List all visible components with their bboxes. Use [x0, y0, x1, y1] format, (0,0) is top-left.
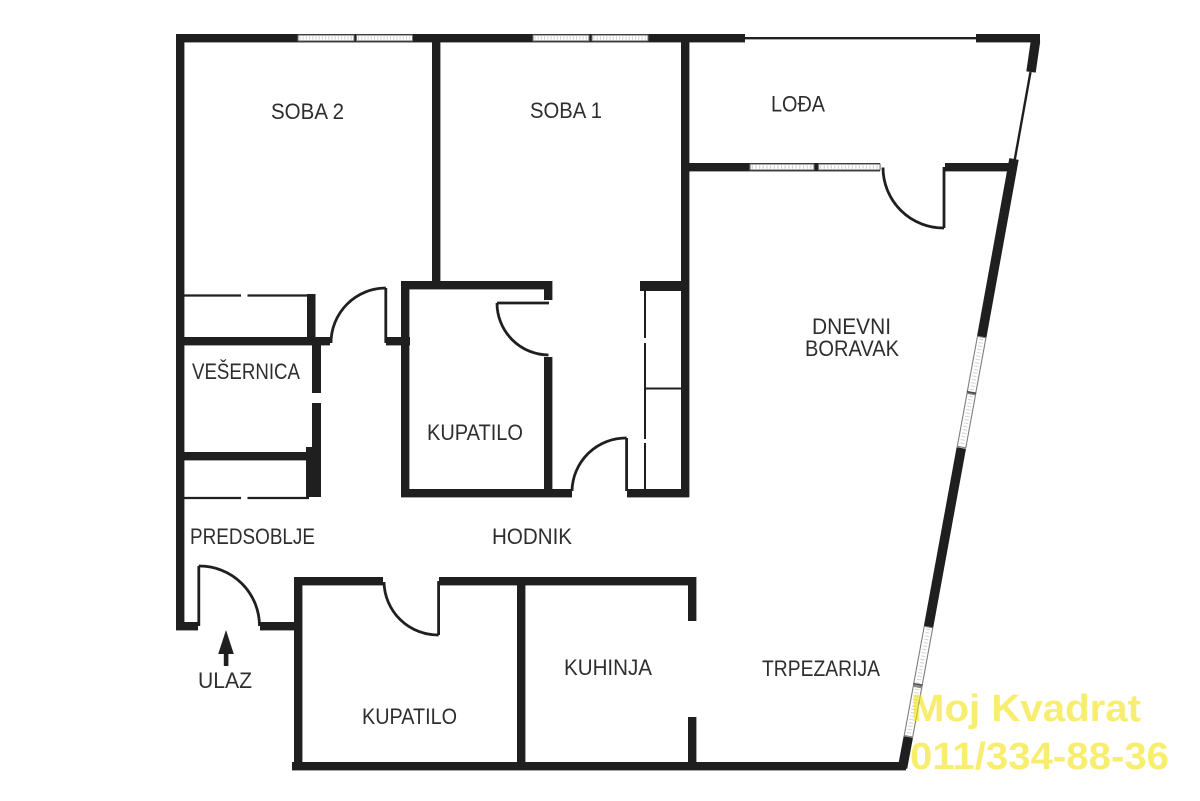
svg-text:Moj Kvadrat: Moj Kvadrat — [911, 688, 1141, 730]
svg-text:PREDSOBLJE: PREDSOBLJE — [190, 524, 315, 549]
svg-text:SOBA 1: SOBA 1 — [530, 98, 602, 123]
svg-text:KUPATILO: KUPATILO — [362, 704, 457, 729]
svg-text:ULAZ: ULAZ — [198, 668, 252, 693]
svg-text:011/334-88-36: 011/334-88-36 — [910, 736, 1169, 778]
svg-text:KUPATILO: KUPATILO — [427, 420, 523, 445]
svg-text:BORAVAK: BORAVAK — [805, 336, 899, 361]
svg-text:VEŠERNICA: VEŠERNICA — [192, 359, 300, 384]
svg-text:SOBA 2: SOBA 2 — [271, 99, 344, 124]
svg-text:KUHINJA: KUHINJA — [564, 655, 652, 680]
svg-text:LOĐA: LOĐA — [771, 92, 825, 117]
svg-text:TRPEZARIJA: TRPEZARIJA — [762, 656, 880, 681]
svg-text:HODNIK: HODNIK — [492, 524, 572, 549]
